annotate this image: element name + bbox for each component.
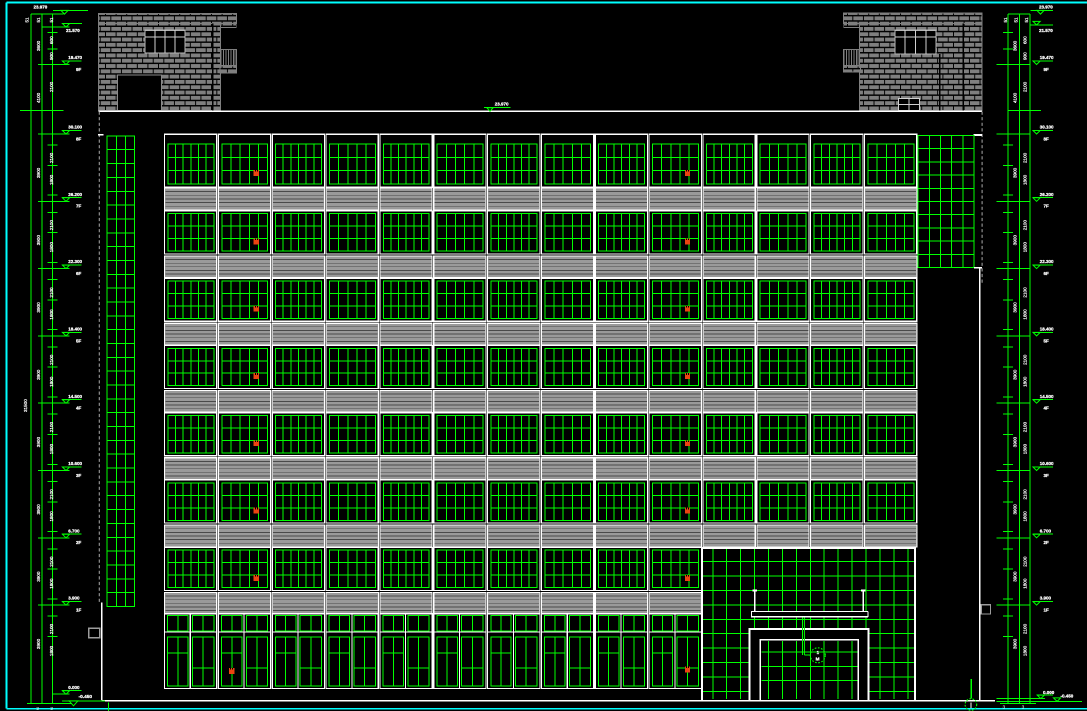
svg-text:4F: 4F [76, 406, 82, 411]
svg-text:3900: 3900 [36, 504, 41, 515]
svg-text:1F: 1F [76, 608, 82, 613]
svg-text:600: 600 [49, 36, 54, 44]
svg-text:1800: 1800 [1023, 645, 1028, 656]
svg-text:1800: 1800 [1023, 444, 1028, 455]
svg-text:4F: 4F [1044, 406, 1050, 411]
svg-text:2100: 2100 [1023, 354, 1028, 365]
svg-text:1800: 1800 [1023, 309, 1028, 320]
svg-text:3.900: 3.900 [68, 596, 80, 601]
svg-text:1800: 1800 [49, 376, 54, 387]
svg-text:3: 3 [50, 706, 53, 711]
svg-text:-0.450: -0.450 [1061, 693, 1074, 698]
svg-text:2100: 2100 [49, 422, 54, 433]
svg-text:3F: 3F [76, 473, 82, 478]
svg-text:10.600: 10.600 [1040, 461, 1054, 466]
svg-text:3900: 3900 [36, 302, 41, 313]
svg-text:2100: 2100 [49, 81, 54, 92]
svg-text:900: 900 [49, 52, 54, 60]
svg-text:3900: 3900 [1013, 167, 1018, 178]
svg-text:7F: 7F [76, 204, 82, 209]
svg-text:6F: 6F [76, 271, 82, 276]
svg-text:2100: 2100 [49, 354, 54, 365]
svg-text:2100: 2100 [49, 489, 54, 500]
svg-text:26.200: 26.200 [68, 192, 82, 197]
svg-text:7F: 7F [1044, 204, 1050, 209]
svg-text:3: 3 [1003, 705, 1006, 711]
svg-text:3900: 3900 [1013, 302, 1018, 313]
svg-text:2F: 2F [1044, 540, 1050, 545]
svg-text:3900: 3900 [36, 571, 41, 582]
svg-text:19.470: 19.470 [1040, 55, 1054, 60]
svg-text:2100: 2100 [49, 287, 54, 298]
svg-text:3900: 3900 [1013, 504, 1018, 515]
svg-text:2100: 2100 [1023, 556, 1028, 567]
svg-text:2100: 2100 [1023, 287, 1028, 298]
svg-text:900: 900 [1023, 52, 1028, 60]
svg-text:1800: 1800 [1023, 242, 1028, 253]
svg-text:-0.450: -0.450 [79, 694, 93, 700]
svg-text:1800: 1800 [49, 309, 54, 320]
svg-text:3900: 3900 [36, 369, 41, 380]
svg-text:22.300: 22.300 [68, 259, 82, 264]
svg-text:2F: 2F [76, 540, 82, 545]
svg-text:1800: 1800 [1023, 578, 1028, 589]
svg-text:5F: 5F [1044, 338, 1050, 343]
svg-text:6.700: 6.700 [1040, 528, 1052, 533]
svg-text:2100: 2100 [49, 623, 54, 634]
svg-text:1800: 1800 [49, 511, 54, 522]
svg-text:19.470: 19.470 [68, 55, 82, 60]
svg-text:2100: 2100 [1023, 220, 1028, 231]
svg-text:0.000: 0.000 [68, 685, 80, 690]
svg-text:51: 51 [1003, 17, 1008, 23]
svg-text:23.970: 23.970 [1039, 5, 1053, 10]
svg-text:3900: 3900 [36, 167, 41, 178]
svg-text:18.400: 18.400 [1040, 327, 1054, 332]
svg-text:21.570: 21.570 [1039, 28, 1053, 33]
svg-text:30.100: 30.100 [1040, 125, 1054, 130]
svg-text:51: 51 [49, 17, 54, 23]
svg-text:2100: 2100 [49, 220, 54, 231]
svg-text:21.570: 21.570 [66, 28, 80, 33]
svg-text:1800: 1800 [49, 444, 54, 455]
svg-text:600: 600 [1023, 36, 1028, 44]
svg-text:2100: 2100 [1023, 623, 1028, 634]
svg-text:3900: 3900 [1013, 638, 1018, 649]
svg-text:1800: 1800 [1023, 511, 1028, 522]
svg-text:3: 3 [1022, 705, 1025, 711]
svg-text:9F: 9F [1044, 67, 1050, 72]
svg-text:3600: 3600 [36, 40, 41, 51]
svg-text:2100: 2100 [1023, 422, 1028, 433]
svg-text:1800: 1800 [1023, 376, 1028, 387]
svg-text:3900: 3900 [1013, 369, 1018, 380]
svg-text:8F: 8F [76, 136, 82, 141]
svg-text:0.000: 0.000 [1043, 690, 1055, 695]
svg-text:1800: 1800 [1023, 174, 1028, 185]
svg-text:2100: 2100 [1023, 489, 1028, 500]
svg-text:3900: 3900 [1013, 571, 1018, 582]
svg-text:9F: 9F [76, 67, 82, 72]
svg-text:3900: 3900 [1013, 437, 1018, 448]
svg-text:1F: 1F [1044, 608, 1050, 613]
svg-text:3900: 3900 [36, 437, 41, 448]
svg-text:30.100: 30.100 [68, 125, 82, 130]
svg-text:6F: 6F [1044, 271, 1050, 276]
svg-text:2100: 2100 [1023, 81, 1028, 92]
svg-text:22.300: 22.300 [1040, 259, 1054, 264]
svg-text:1800: 1800 [49, 242, 54, 253]
svg-text:31500: 31500 [23, 399, 28, 412]
svg-text:1800: 1800 [49, 645, 54, 656]
svg-text:2100: 2100 [49, 152, 54, 163]
svg-text:51: 51 [1024, 17, 1029, 23]
svg-text:51: 51 [1014, 17, 1019, 23]
svg-text:3F: 3F [1044, 473, 1050, 478]
svg-text:10.600: 10.600 [68, 461, 82, 466]
svg-text:1800: 1800 [49, 174, 54, 185]
svg-text:4100: 4100 [1013, 92, 1018, 103]
svg-text:M: M [816, 657, 820, 662]
svg-text:3.900: 3.900 [1040, 596, 1052, 601]
svg-text:3: 3 [36, 706, 39, 711]
svg-text:1800: 1800 [49, 578, 54, 589]
svg-text:51: 51 [24, 17, 29, 23]
svg-text:14.500: 14.500 [1040, 394, 1054, 399]
svg-text:18.400: 18.400 [68, 327, 82, 332]
svg-text:6.700: 6.700 [68, 528, 80, 533]
svg-text:14.500: 14.500 [68, 394, 82, 399]
svg-text:23.970: 23.970 [34, 5, 48, 10]
svg-text:3900: 3900 [36, 235, 41, 246]
svg-text:23.970: 23.970 [495, 102, 509, 107]
svg-text:2100: 2100 [1023, 152, 1028, 163]
svg-text:3600: 3600 [1013, 40, 1018, 51]
svg-text:2100: 2100 [49, 556, 54, 567]
svg-text:3900: 3900 [1013, 235, 1018, 246]
svg-text:3900: 3900 [36, 638, 41, 649]
svg-text:4100: 4100 [36, 92, 41, 103]
svg-text:5F: 5F [76, 338, 82, 343]
svg-text:26.200: 26.200 [1040, 192, 1054, 197]
svg-text:8F: 8F [1044, 136, 1050, 141]
svg-text:51: 51 [36, 17, 41, 23]
